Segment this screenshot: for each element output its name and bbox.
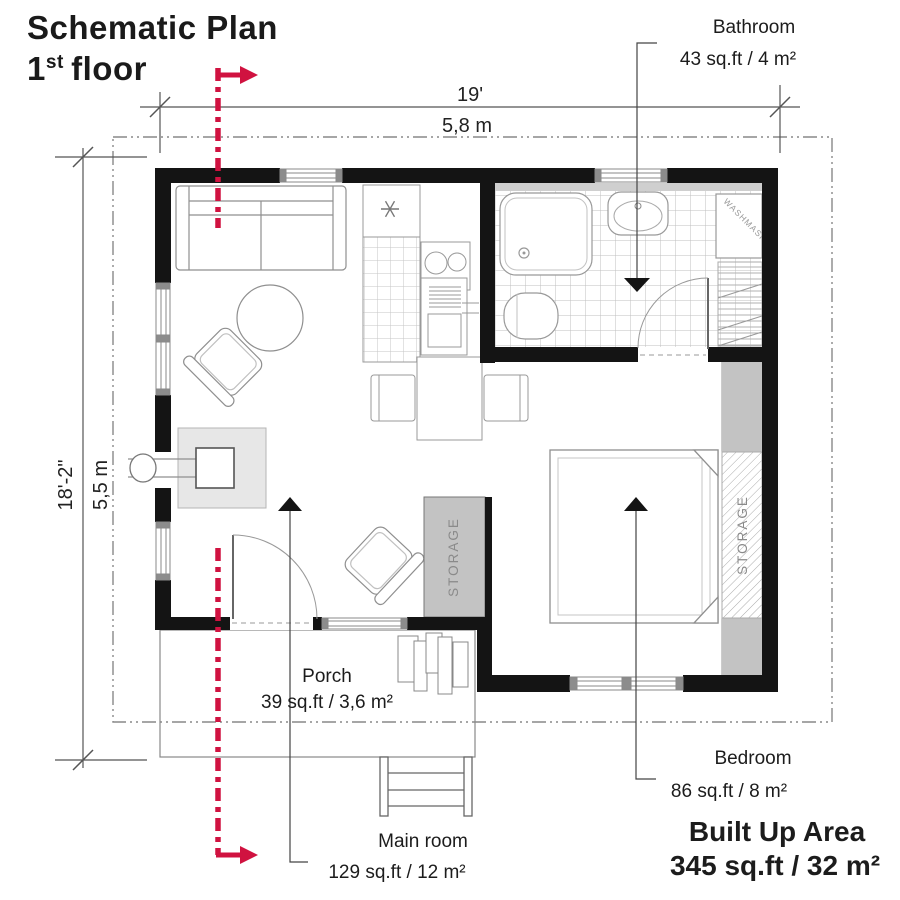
storage-middle-label: STORAGE	[446, 517, 461, 597]
porch-label: Porch	[302, 666, 352, 688]
storage-right: STORAGE	[722, 362, 762, 675]
dining-chair-right	[484, 375, 528, 421]
dining-chair-left	[371, 375, 415, 421]
sofa	[176, 186, 346, 270]
page-title: Schematic Plan 1stfloor	[27, 8, 278, 90]
window-left-small	[156, 522, 170, 580]
bathroom-sink	[608, 192, 668, 235]
toilet	[504, 293, 558, 339]
main-room-label: Main room	[378, 831, 468, 853]
dimension-left-feet: 18'-2"	[55, 460, 77, 511]
floor-ordinal: st	[46, 52, 64, 73]
bathroom-shelf-band	[495, 183, 762, 191]
dimension-top-meters: 5,8 m	[442, 115, 492, 137]
bathroom-area: 43 sq.ft / 4 m²	[680, 49, 796, 71]
porch-area: 39 sq.ft / 3,6 m²	[261, 692, 393, 714]
bedroom-area: 86 sq.ft / 8 m²	[671, 781, 787, 803]
built-up-area-label: Built Up Area	[689, 816, 865, 848]
stove-box	[196, 448, 234, 488]
storage-middle: STORAGE	[424, 497, 485, 617]
title-line2: 1stfloor	[27, 49, 278, 90]
window-top-main	[280, 169, 342, 182]
dimension-left-meters: 5,5 m	[90, 460, 112, 510]
round-table	[237, 285, 303, 351]
title-line1: Schematic Plan	[27, 8, 278, 49]
main-room-area: 129 sq.ft / 12 m²	[328, 862, 465, 884]
floor-plan-page: WASHMASINE STORAGE STORAGE	[0, 0, 900, 900]
section-arrow-icon	[240, 846, 258, 864]
window-bedroom-double	[570, 677, 683, 690]
dining-table	[417, 357, 482, 440]
bathroom-shelves	[718, 262, 762, 346]
floor-word: floor	[71, 50, 147, 87]
shower	[500, 193, 592, 275]
bathroom-interior: WASHMASINE	[495, 183, 777, 347]
storage-right-label: STORAGE	[735, 495, 750, 575]
bathroom-label: Bathroom	[713, 17, 795, 39]
dimension-top-feet: 19'	[457, 84, 483, 106]
window-top-bathroom	[595, 169, 667, 182]
bed	[550, 450, 718, 623]
window-bottom-main	[322, 618, 407, 629]
bedroom-label: Bedroom	[714, 748, 791, 770]
porch-steps	[380, 757, 472, 816]
chimney-pipe	[130, 454, 156, 482]
built-up-area-value: 345 sq.ft / 32 m²	[670, 850, 880, 882]
fireplace	[128, 428, 266, 508]
window-left-double	[156, 283, 170, 395]
floor-number: 1	[27, 50, 46, 87]
